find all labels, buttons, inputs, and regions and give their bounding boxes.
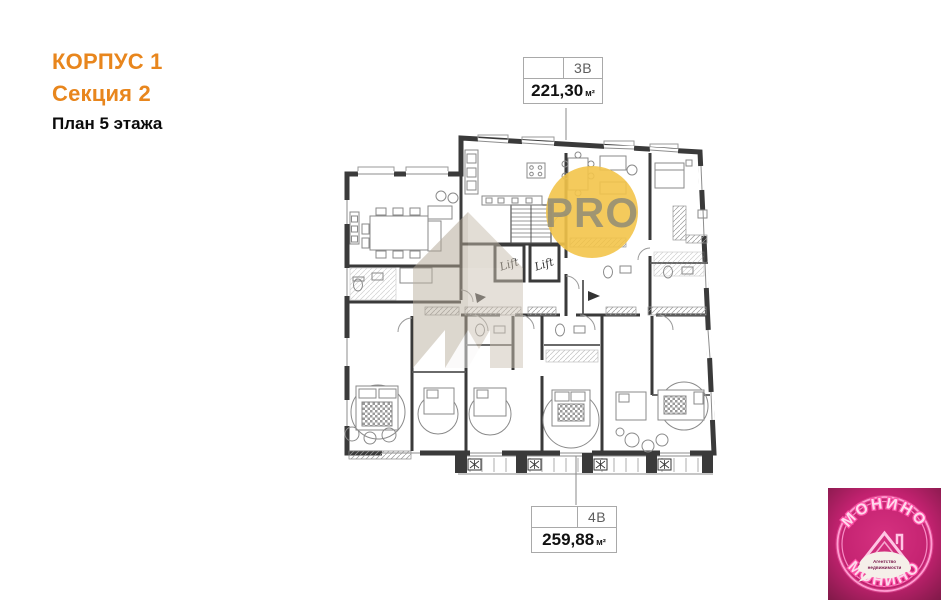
pro-text: PRO (545, 189, 639, 236)
ac-unit-icons (468, 459, 671, 470)
logo-tagline-line2: недвижимости (868, 565, 902, 570)
logo-tagline-line1: Агентство (873, 559, 896, 564)
floor-plan-drawing: Lift Lift (0, 0, 941, 600)
agency-logo: МОНИНО МОНИНО Агентство недвижимости (828, 488, 941, 600)
floorplan-page: КОРПУС 1 Секция 2 План 5 этажа 3В 221,30… (0, 0, 941, 600)
